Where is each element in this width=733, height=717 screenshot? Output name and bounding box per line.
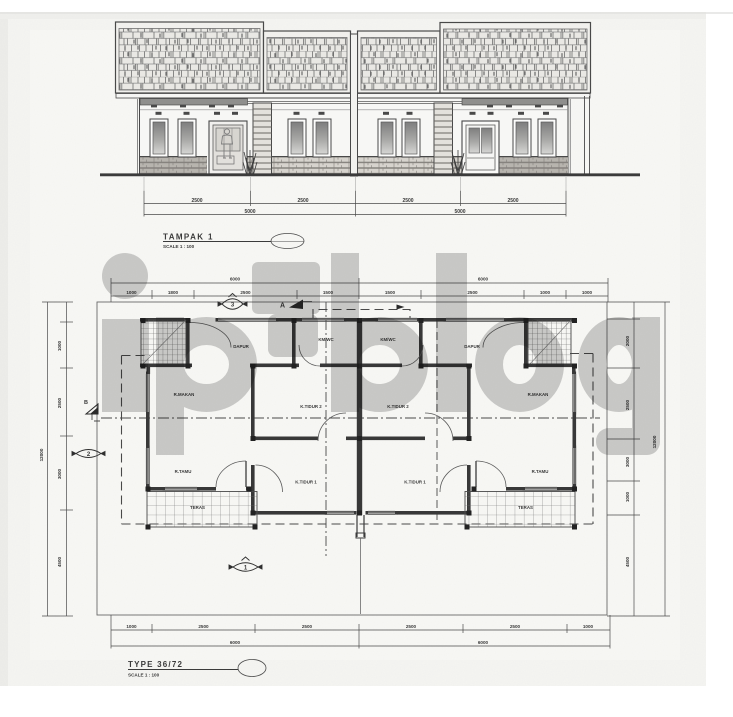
svg-text:1000: 1000 — [57, 340, 62, 351]
svg-text:SCALE 1 : 100: SCALE 1 : 100 — [128, 673, 160, 678]
svg-text:K.TIDUR 1: K.TIDUR 1 — [404, 480, 426, 485]
svg-text:3000: 3000 — [625, 456, 630, 467]
svg-text:TAMPAK 1: TAMPAK 1 — [163, 233, 214, 242]
svg-text:2500: 2500 — [198, 624, 209, 629]
svg-text:2500: 2500 — [406, 624, 417, 629]
svg-text:2500: 2500 — [57, 397, 62, 408]
svg-text:4500: 4500 — [625, 556, 630, 567]
svg-text:2500: 2500 — [240, 290, 251, 295]
svg-text:5000: 5000 — [454, 209, 465, 215]
svg-text:TYPE 36/72: TYPE 36/72 — [128, 660, 183, 669]
svg-text:6000: 6000 — [478, 277, 489, 282]
svg-text:R.TAMU: R.TAMU — [175, 469, 192, 474]
svg-text:4500: 4500 — [57, 556, 62, 567]
svg-text:2500: 2500 — [467, 290, 478, 295]
svg-text:1000: 1000 — [583, 624, 594, 629]
svg-text:1000: 1000 — [582, 290, 593, 295]
svg-text:6000: 6000 — [478, 640, 489, 645]
svg-text:1500: 1500 — [385, 290, 396, 295]
svg-text:SCALE 1 : 100: SCALE 1 : 100 — [163, 244, 195, 249]
svg-text:2500: 2500 — [507, 198, 518, 204]
svg-text:1800: 1800 — [168, 290, 179, 295]
svg-text:6000: 6000 — [230, 640, 241, 645]
svg-text:1000: 1000 — [540, 290, 551, 295]
svg-text:2500: 2500 — [191, 198, 202, 204]
svg-text:K.TIDUR 2: K.TIDUR 2 — [300, 404, 322, 409]
svg-text:TERAS: TERAS — [190, 505, 205, 510]
svg-text:2500: 2500 — [302, 624, 313, 629]
svg-text:6000: 6000 — [230, 277, 241, 282]
svg-text:3000: 3000 — [57, 468, 62, 479]
svg-text:1000: 1000 — [126, 624, 137, 629]
svg-text:5000: 5000 — [244, 209, 255, 215]
svg-text:2500: 2500 — [510, 624, 521, 629]
svg-text:2500: 2500 — [402, 198, 413, 204]
svg-text:2500: 2500 — [297, 198, 308, 204]
svg-text:1000: 1000 — [625, 491, 630, 502]
svg-text:K.TIDUR 1: K.TIDUR 1 — [295, 480, 317, 485]
svg-text:TERAS: TERAS — [518, 505, 533, 510]
svg-text:B: B — [84, 400, 88, 406]
svg-text:12000: 12000 — [39, 448, 44, 461]
svg-text:R.TAMU: R.TAMU — [532, 469, 549, 474]
